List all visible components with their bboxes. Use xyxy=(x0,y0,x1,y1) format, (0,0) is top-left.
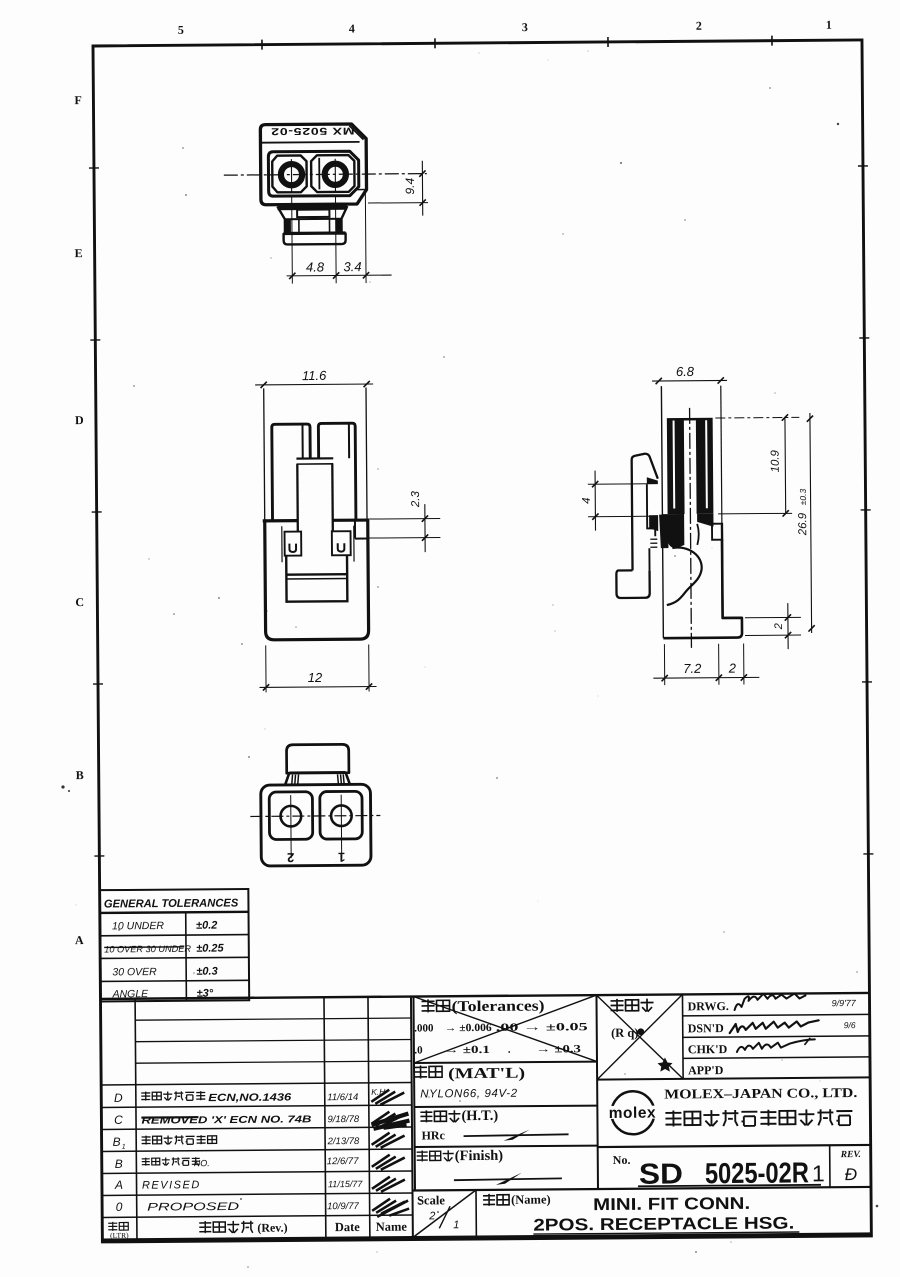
svg-text:10 OVER 30 UNDER: 10 OVER 30 UNDER xyxy=(104,944,191,955)
svg-text:9.4: 9.4 xyxy=(403,177,417,194)
svg-text:.: . xyxy=(508,1044,511,1056)
svg-text:GENERAL TOLERANCES: GENERAL TOLERANCES xyxy=(104,897,239,910)
svg-text:REVISED: REVISED xyxy=(142,1179,201,1191)
svg-text:±0.3: ±0.3 xyxy=(196,966,217,978)
svg-text:.000: .000 xyxy=(414,1022,434,1034)
svg-text:11/6/14: 11/6/14 xyxy=(327,1092,358,1103)
svg-text:REMOVED 'X' ECN NO. 74B: REMOVED 'X' ECN NO. 74B xyxy=(141,1114,311,1126)
svg-text:10.9: 10.9 xyxy=(770,449,782,472)
svg-text:26.9: 26.9 xyxy=(797,512,809,536)
svg-text:7.2: 7.2 xyxy=(683,661,702,676)
svg-text:B: B xyxy=(76,768,84,782)
svg-text:HRc: HRc xyxy=(422,1128,446,1142)
svg-text:C: C xyxy=(114,1113,123,1127)
svg-text:4.8: 4.8 xyxy=(306,259,325,274)
svg-text:1: 1 xyxy=(812,1160,825,1186)
svg-text:MINI. FIT CONN.: MINI. FIT CONN. xyxy=(593,1194,750,1214)
svg-text:CHK'D: CHK'D xyxy=(688,1042,728,1056)
svg-text:REV.: REV. xyxy=(840,1150,861,1160)
svg-text:(R q): (R q) xyxy=(611,1026,639,1040)
svg-text:A: A xyxy=(75,933,84,947)
svg-text:Đ: Đ xyxy=(845,1165,857,1184)
svg-text:(Finish): (Finish) xyxy=(455,1148,504,1164)
svg-text:2: 2 xyxy=(696,19,702,33)
svg-text:±0.2: ±0.2 xyxy=(196,920,217,932)
svg-text:NO.: NO. xyxy=(194,1158,210,1168)
svg-text:(Name): (Name) xyxy=(511,1192,551,1206)
svg-text:5: 5 xyxy=(178,23,184,37)
svg-text:→ ±0.006: → ±0.006 xyxy=(445,1022,493,1034)
svg-text:4: 4 xyxy=(349,21,355,35)
svg-text:9/18/78: 9/18/78 xyxy=(327,1114,359,1125)
svg-text:C: C xyxy=(75,595,84,609)
svg-text:0: 0 xyxy=(116,1200,123,1214)
svg-text:±0.25: ±0.25 xyxy=(196,942,224,954)
svg-text:±0.3: ±0.3 xyxy=(798,488,808,505)
svg-text:(LTR): (LTR) xyxy=(110,1231,129,1240)
svg-text:MX 5025-02: MX 5025-02 xyxy=(270,125,354,137)
svg-text:1: 1 xyxy=(122,1144,126,1151)
svg-text:.0: .0 xyxy=(414,1044,423,1056)
svg-text:No.: No. xyxy=(613,1153,631,1167)
svg-text:2: 2 xyxy=(428,1210,435,1222)
svg-text:→ ±0.3: → ±0.3 xyxy=(536,1043,582,1055)
svg-text:MOLEX–JAPAN CO., LTD.: MOLEX–JAPAN CO., LTD. xyxy=(664,1085,857,1102)
svg-text:Scale: Scale xyxy=(417,1193,445,1207)
svg-text:D: D xyxy=(114,1091,123,1105)
svg-text:2POS. RECEPTACLE HSG.: 2POS. RECEPTACLE HSG. xyxy=(533,1214,794,1235)
svg-text:1: 1 xyxy=(453,1219,459,1231)
svg-text:molex: molex xyxy=(609,1105,656,1122)
svg-text:Name: Name xyxy=(376,1220,408,1234)
svg-text:DSN'D: DSN'D xyxy=(688,1021,724,1035)
svg-text:DRWG.: DRWG. xyxy=(688,999,729,1013)
svg-text:1: 1 xyxy=(338,850,345,865)
svg-text:3.4: 3.4 xyxy=(343,259,361,274)
svg-text:1: 1 xyxy=(826,18,832,32)
svg-text:2: 2 xyxy=(773,623,785,630)
svg-text:NYLON66, 94V-2: NYLON66, 94V-2 xyxy=(420,1088,518,1101)
svg-text:B: B xyxy=(115,1157,123,1171)
svg-text:10/9/77: 10/9/77 xyxy=(327,1201,359,1212)
svg-text:11.6: 11.6 xyxy=(302,368,327,383)
svg-text:D: D xyxy=(75,413,84,427)
svg-text:Date: Date xyxy=(335,1220,361,1234)
svg-text:.00 → ±0.05: .00 → ±0.05 xyxy=(496,1021,589,1034)
svg-text:(Tolerances): (Tolerances) xyxy=(451,998,544,1015)
svg-text:11/15/77: 11/15/77 xyxy=(328,1179,363,1189)
svg-text:PROPOSED: PROPOSED xyxy=(147,1201,239,1214)
svg-text:B: B xyxy=(113,1135,121,1149)
svg-text:(MAT'L): (MAT'L) xyxy=(448,1066,525,1083)
svg-text:→ ±0.1: → ±0.1 xyxy=(444,1044,490,1056)
svg-text:12: 12 xyxy=(308,670,323,685)
svg-text:10 UNDER: 10 UNDER xyxy=(112,920,164,932)
svg-text:9/9'77: 9/9'77 xyxy=(832,998,857,1008)
svg-text:2/13/78: 2/13/78 xyxy=(327,1136,360,1147)
svg-text:9/6: 9/6 xyxy=(844,1020,856,1030)
svg-text:2: 2 xyxy=(728,661,737,676)
svg-text:6.8: 6.8 xyxy=(676,364,695,379)
svg-text:(H.T.): (H.T.) xyxy=(461,1108,498,1124)
svg-text:30 OVER: 30 OVER xyxy=(112,966,157,978)
svg-text:4: 4 xyxy=(581,497,593,504)
svg-text:E: E xyxy=(75,246,83,260)
svg-text:3: 3 xyxy=(522,20,528,34)
svg-text:2.3: 2.3 xyxy=(410,491,422,509)
svg-text:APP'D: APP'D xyxy=(688,1063,724,1077)
svg-text:(Rev.): (Rev.) xyxy=(257,1221,287,1235)
svg-text:F: F xyxy=(74,93,81,107)
svg-text:ECN,NO.1436: ECN,NO.1436 xyxy=(208,1091,291,1104)
svg-text:A: A xyxy=(114,1178,123,1192)
svg-text:12/6/77: 12/6/77 xyxy=(327,1156,359,1167)
svg-text:2: 2 xyxy=(287,850,294,865)
